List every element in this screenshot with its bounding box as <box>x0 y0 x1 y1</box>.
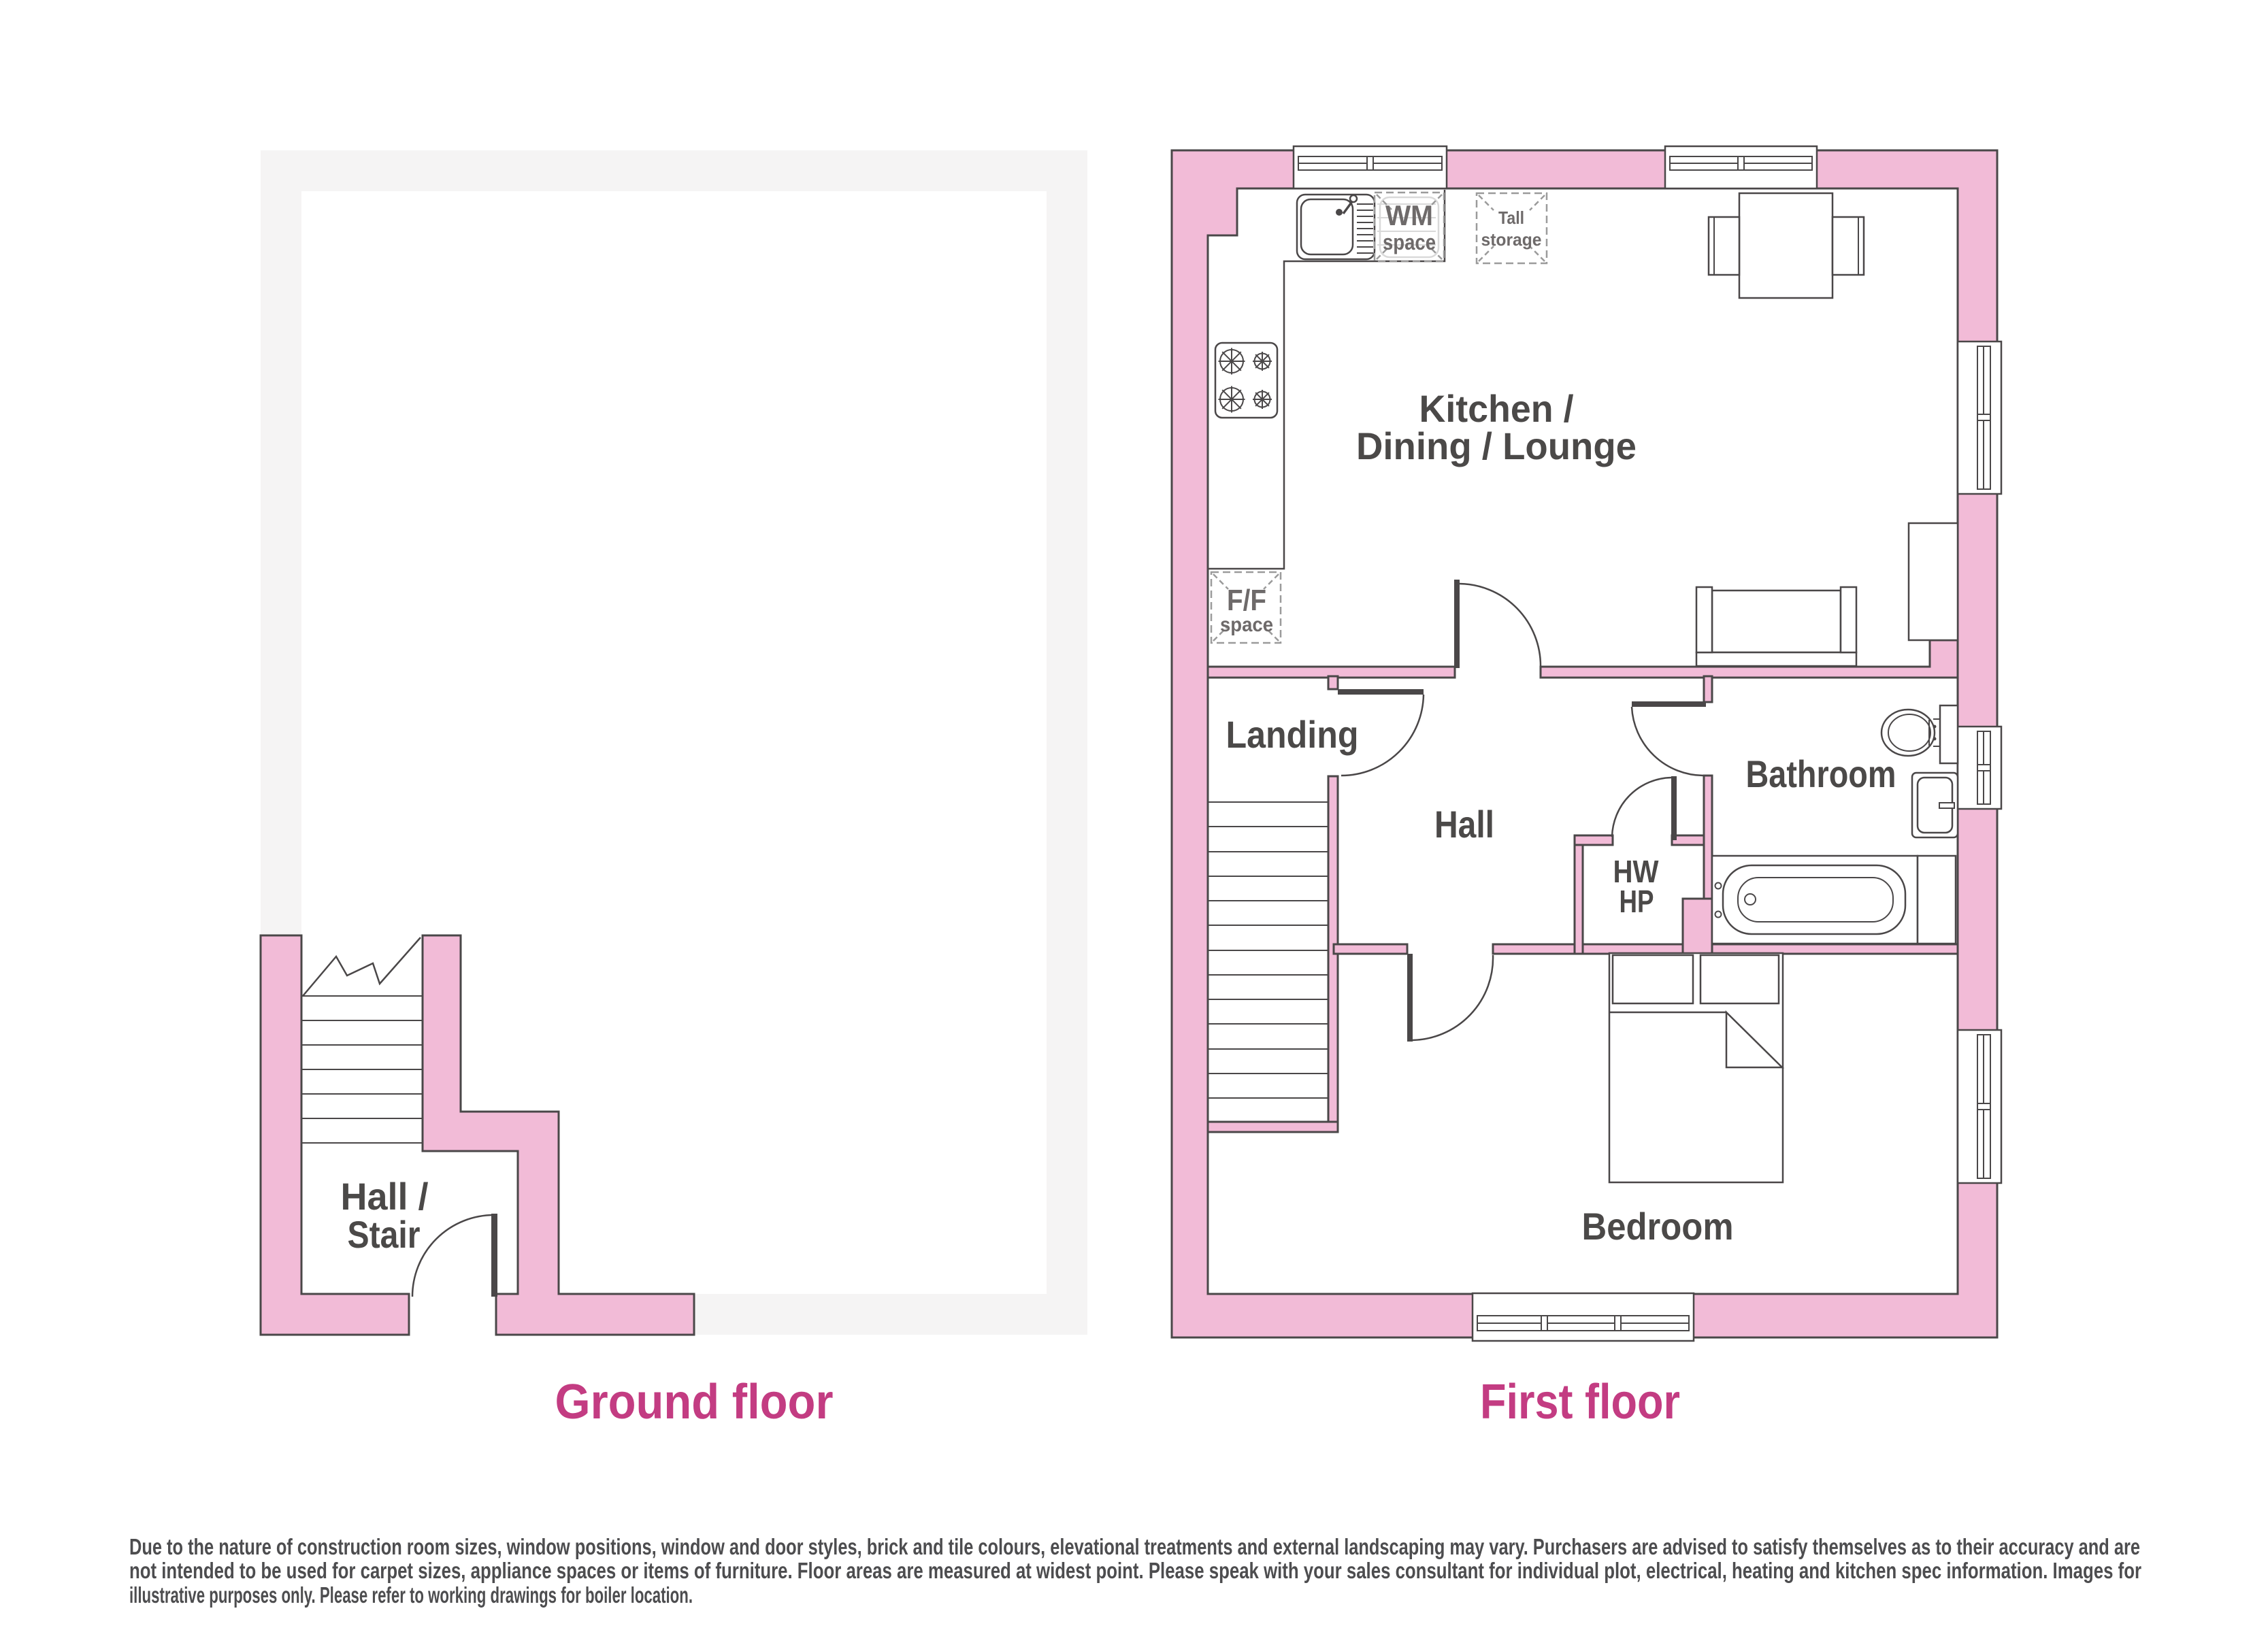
svg-text:WM: WM <box>1385 199 1433 231</box>
svg-text:F/F: F/F <box>1227 584 1266 617</box>
svg-text:Stair: Stair <box>348 1213 421 1256</box>
svg-text:HP: HP <box>1620 884 1654 919</box>
svg-text:storage: storage <box>1481 229 1542 250</box>
svg-text:Bedroom: Bedroom <box>1582 1205 1734 1248</box>
svg-text:illustrative purposes only. Pl: illustrative purposes only. Please refer… <box>129 1582 693 1608</box>
svg-text:Landing: Landing <box>1226 713 1359 756</box>
svg-text:space: space <box>1383 230 1436 254</box>
svg-text:Bathroom: Bathroom <box>1746 752 1896 795</box>
svg-text:Ground floor: Ground floor <box>555 1375 834 1429</box>
svg-text:Dining / Lounge: Dining / Lounge <box>1356 425 1637 467</box>
svg-text:Kitchen /: Kitchen / <box>1419 387 1574 430</box>
svg-text:Due to the nature of construct: Due to the nature of construction room s… <box>129 1534 2140 1559</box>
svg-text:Hall /: Hall / <box>341 1175 429 1218</box>
svg-text:not intended to be used for ca: not intended to be used for carpet sizes… <box>129 1558 2141 1583</box>
svg-text:First floor: First floor <box>1480 1375 1680 1429</box>
svg-text:space: space <box>1220 614 1273 636</box>
svg-text:Hall: Hall <box>1434 803 1494 846</box>
svg-text:Tall: Tall <box>1498 207 1524 228</box>
